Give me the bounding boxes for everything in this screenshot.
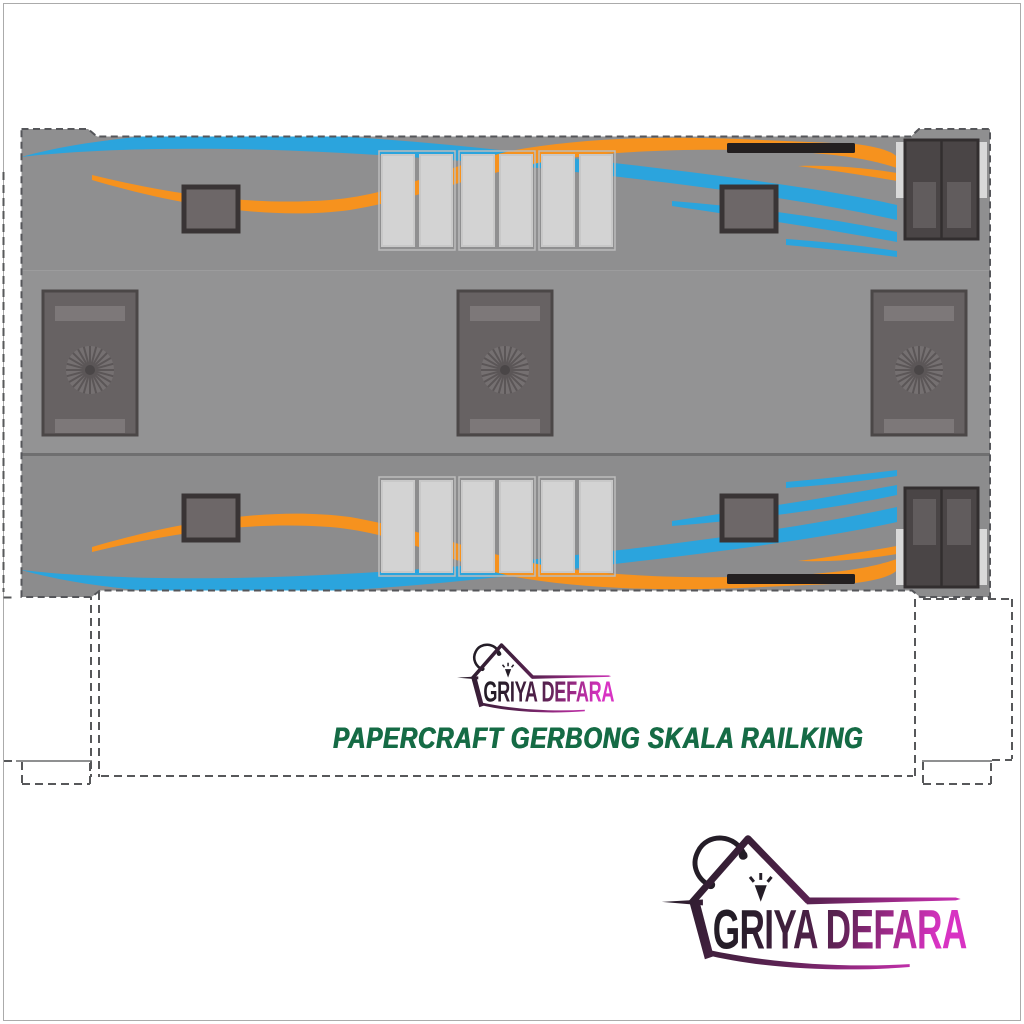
click-sparkle-icon	[503, 663, 514, 676]
tagline-text: PAPERCRAFT GERBONG SKALA RAILKING	[333, 722, 735, 756]
brand-name-text: GRIYA DEFARA	[713, 898, 967, 960]
click-sparkle-icon	[750, 873, 772, 898]
papercraft-sheet: GRIYA DEFARA GRIYA DEFARA PAPERCRAFT GER…	[0, 0, 1024, 1024]
branding-layer: GRIYA DEFARA GRIYA DEFARA	[0, 0, 1024, 1024]
bag-handle-icon	[474, 645, 500, 670]
house-roof-icon	[691, 839, 809, 904]
bag-handle-icon	[695, 838, 745, 886]
center-logo: GRIYA DEFARA	[457, 645, 614, 713]
bag-edge	[471, 676, 484, 707]
bag-edge	[689, 899, 714, 959]
brand-name-text: GRIYA DEFARA	[483, 677, 614, 709]
footer-logo: GRIYA DEFARA	[662, 838, 967, 969]
house-roof-icon	[472, 645, 533, 678]
